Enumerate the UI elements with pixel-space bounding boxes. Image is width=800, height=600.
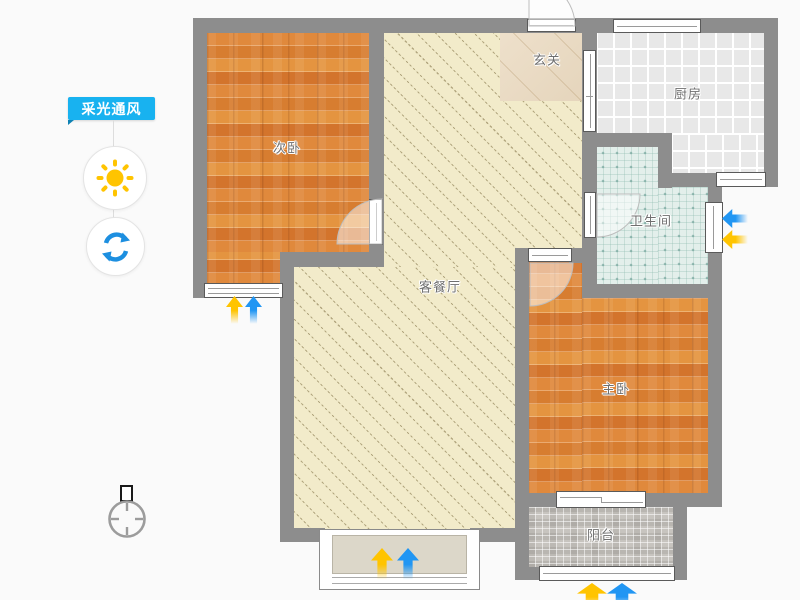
room-label-living-dining: 客餐厅 bbox=[419, 277, 461, 296]
room-label-entry-hall: 玄关 bbox=[533, 50, 561, 69]
kitchen-floor bbox=[671, 133, 765, 174]
sliding-door bbox=[556, 491, 646, 508]
door-leaf bbox=[369, 199, 383, 245]
lighting-ventilation-label: 采光通风 bbox=[68, 97, 155, 120]
window bbox=[705, 202, 723, 253]
window bbox=[204, 283, 283, 298]
sunlight-arrow bbox=[226, 296, 243, 325]
compass-north-indicator bbox=[100, 482, 154, 542]
bathroom-floor bbox=[658, 187, 709, 285]
connector-line bbox=[113, 120, 114, 147]
kitchen-floor bbox=[596, 31, 765, 134]
wall bbox=[193, 18, 207, 298]
wall bbox=[595, 284, 722, 298]
door-leaf bbox=[584, 192, 596, 238]
master-bedroom-floor bbox=[528, 261, 583, 495]
kitchen-sliding-door bbox=[583, 50, 596, 132]
door-leaf bbox=[528, 248, 572, 262]
bay-window-seat bbox=[332, 535, 467, 574]
wind-arrow bbox=[245, 296, 262, 325]
sunlight-arrow bbox=[577, 583, 607, 600]
window bbox=[613, 19, 701, 33]
ventilation-button[interactable] bbox=[86, 217, 145, 276]
wall bbox=[280, 252, 384, 267]
secondary-bedroom-floor bbox=[207, 252, 282, 286]
sunlight-arrow bbox=[722, 230, 749, 249]
room-label-balcony: 阳台 bbox=[587, 525, 615, 544]
sunlight-button[interactable] bbox=[83, 146, 147, 210]
wind-arrow bbox=[722, 209, 749, 228]
refresh-icon bbox=[100, 231, 132, 263]
room-label-kitchen: 厨房 bbox=[674, 84, 702, 103]
room-label-bathroom: 卫生间 bbox=[630, 211, 672, 230]
room-label-secondary-bedroom: 次卧 bbox=[273, 138, 301, 157]
sun-icon bbox=[95, 158, 135, 198]
wind-arrow bbox=[607, 583, 637, 600]
room-label-master-bedroom: 主卧 bbox=[602, 379, 630, 398]
wall bbox=[673, 507, 687, 580]
wall bbox=[515, 248, 529, 580]
wall bbox=[643, 493, 722, 507]
entrance-door-leaf bbox=[527, 19, 576, 32]
living-dining-floor bbox=[293, 267, 516, 529]
window bbox=[539, 566, 675, 581]
window bbox=[716, 172, 766, 187]
wall bbox=[764, 18, 778, 187]
floorplan-viewer: 次卧 玄关 厨房 卫生间 客餐厅 主卧 阳台 采光通风 bbox=[0, 0, 800, 600]
